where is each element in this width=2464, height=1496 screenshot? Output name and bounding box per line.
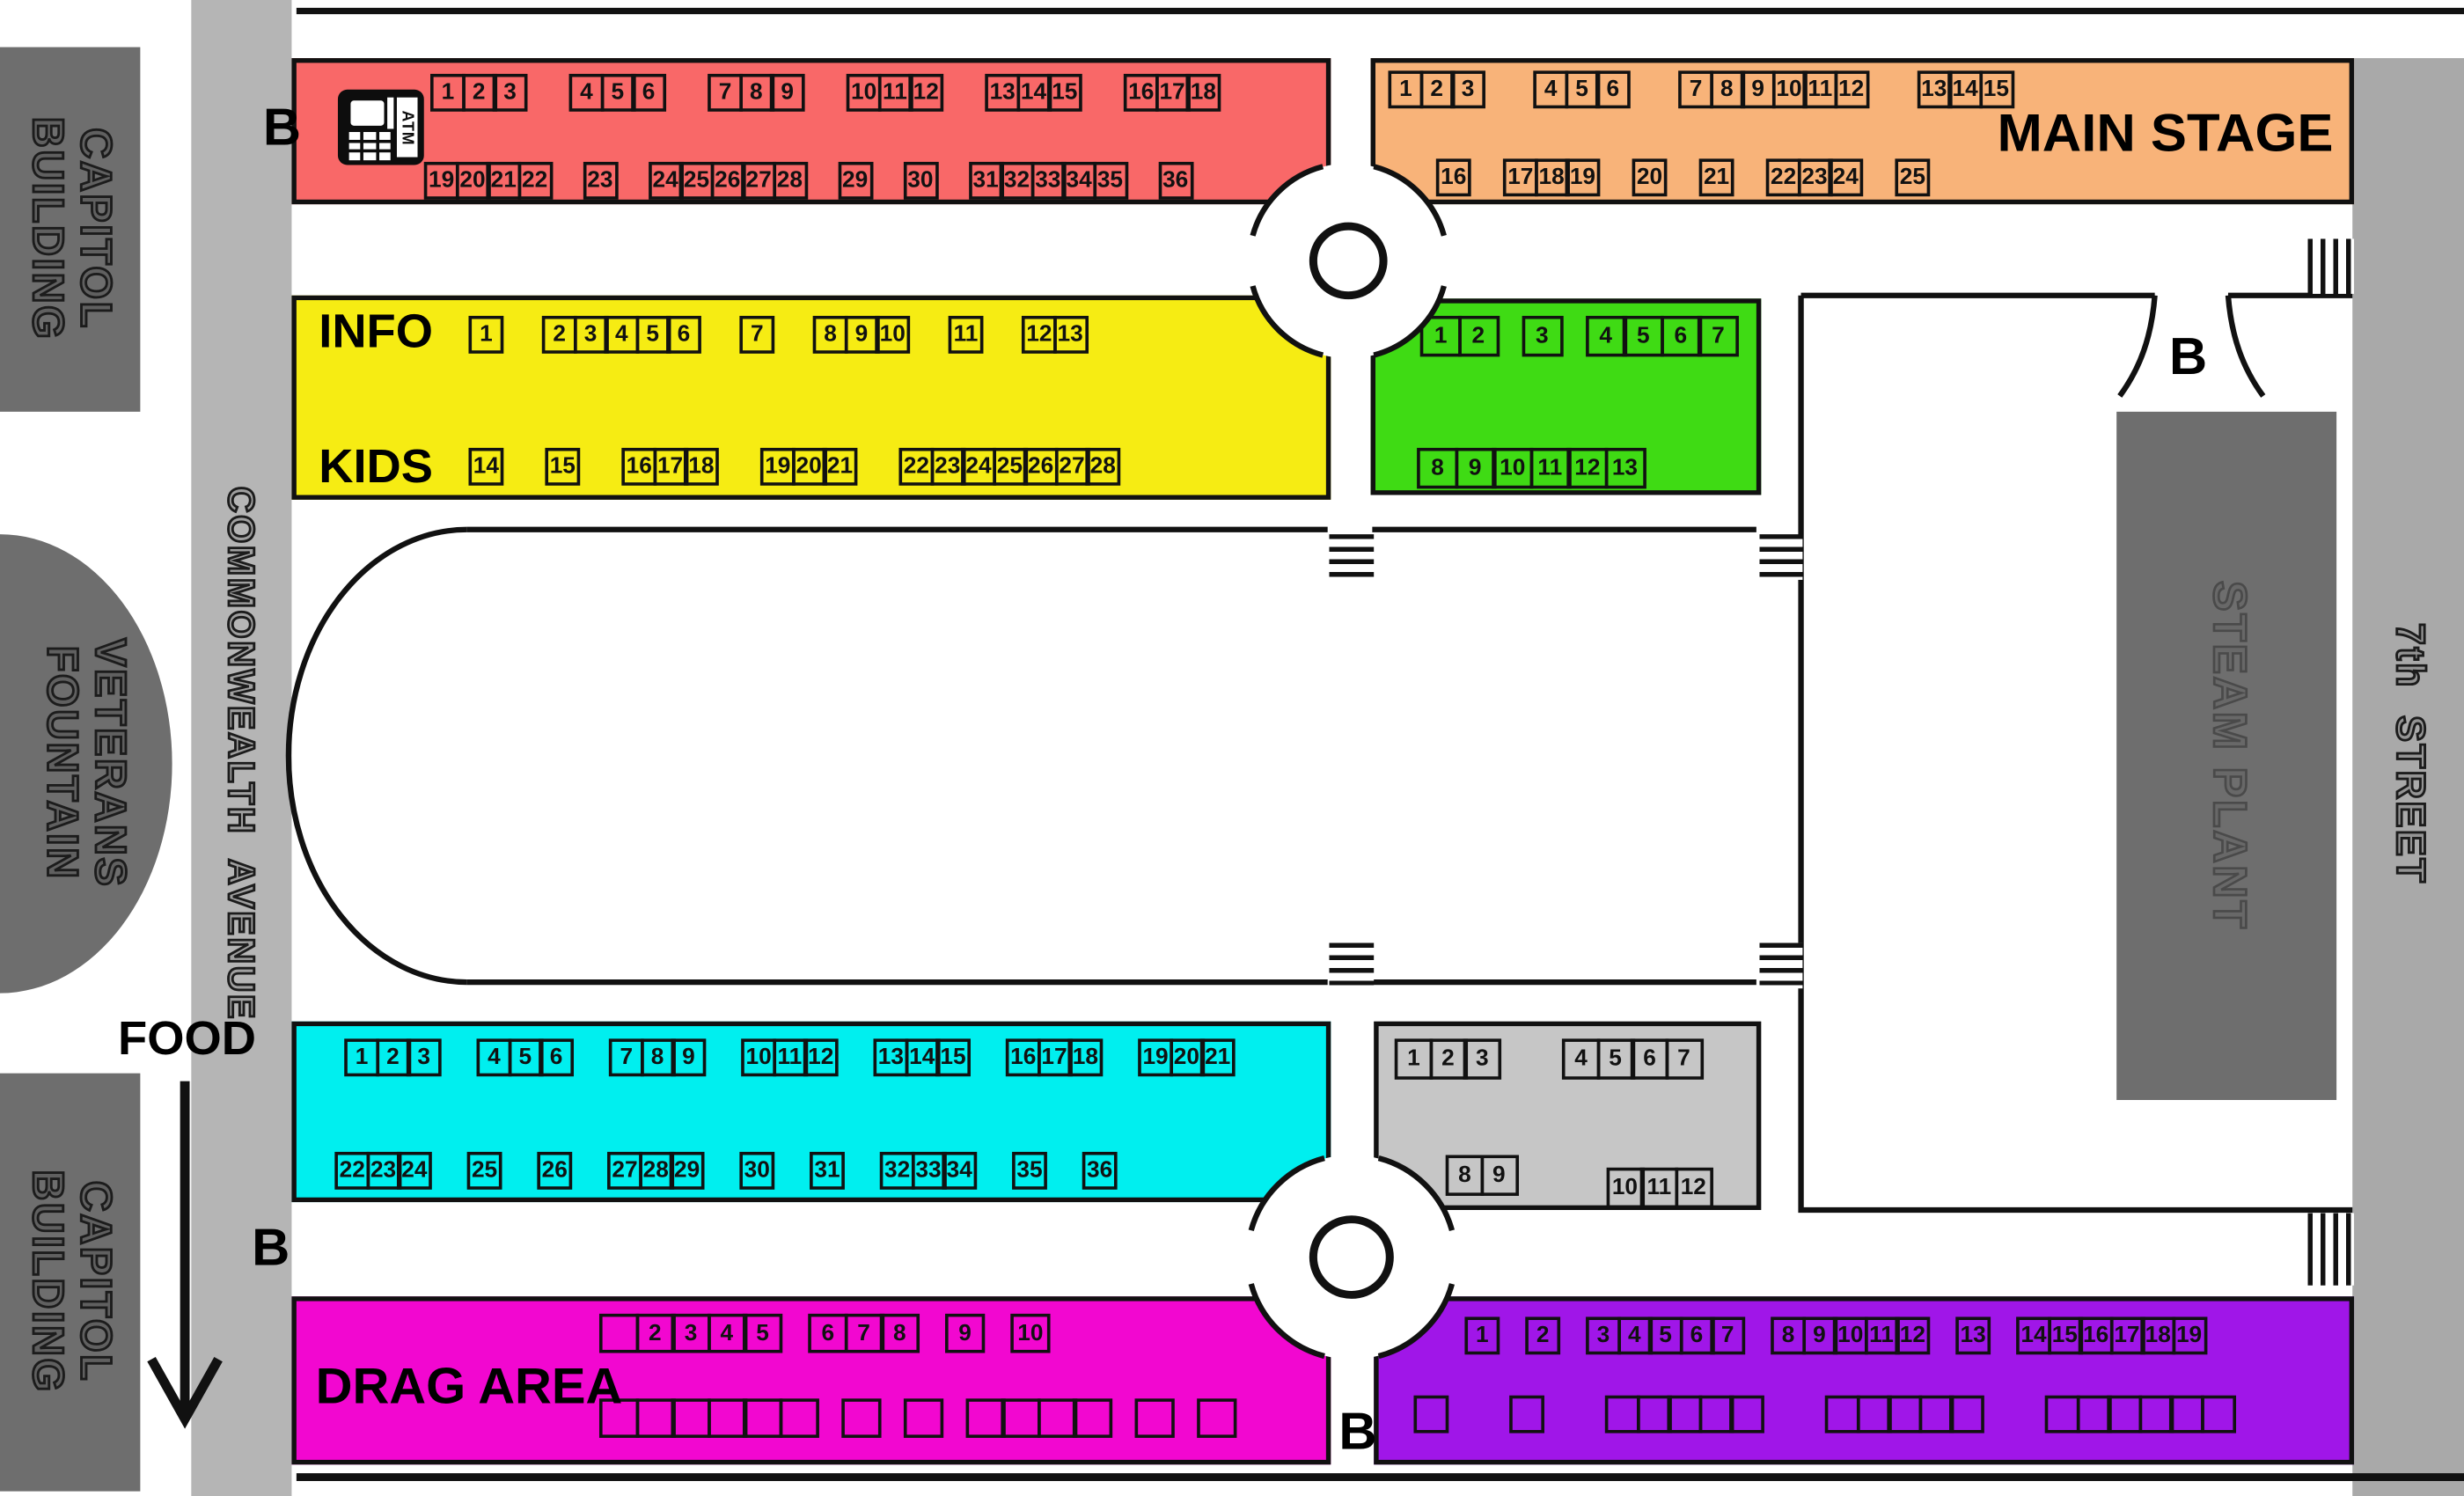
booth-group: 31: [810, 1152, 845, 1190]
booth-group: 16: [1436, 158, 1471, 196]
booth-cell: 12: [1566, 448, 1608, 488]
zone-green-vendors: 1234567 8910111213: [1371, 298, 1762, 495]
booth-cell: [1413, 1396, 1448, 1434]
booth-group: 131415: [985, 74, 1082, 112]
booth-cell: [743, 1398, 782, 1438]
booth-cell: 16: [621, 448, 656, 486]
booth-cell: 8: [880, 1314, 920, 1353]
booth-cell: [1037, 1398, 1076, 1438]
atm-icon: ATM: [338, 90, 424, 165]
capitol-building-north: CAPITOL BUILDING: [0, 48, 140, 412]
booth-group: 456: [569, 74, 666, 112]
booth-cell: [1856, 1396, 1891, 1434]
booth-cell: 11: [1640, 1168, 1678, 1208]
booth-cell: 24: [648, 162, 683, 200]
booth-cell: 10: [1492, 448, 1533, 488]
booth-group: 21: [1699, 158, 1734, 196]
zone-drag-area: DRAG AREA 2345678910: [291, 1296, 1331, 1464]
booth-cell: 23: [366, 1152, 401, 1190]
commonwealth-avenue-label: COMMONWEALTH AVENUE: [221, 488, 261, 1022]
booth-cell: [2138, 1396, 2174, 1434]
booth-cell: 25: [1895, 158, 1930, 196]
booth-cell: 32: [1000, 162, 1035, 200]
booth-cell: 18: [1185, 74, 1221, 112]
booth-cell: 21: [823, 448, 858, 486]
booth-cell: 6: [808, 1314, 847, 1353]
booth-cell: 1: [468, 316, 503, 354]
booth-cell: [840, 1398, 880, 1438]
festival-map: COMMONWEALTH AVENUE 7th STREET CAPITOL B…: [0, 0, 2464, 1496]
atm-screen: [350, 100, 384, 126]
booth-cell: 8: [1446, 1155, 1484, 1195]
booth-cell: 16: [1006, 1038, 1041, 1076]
booth-cell: 10: [1010, 1314, 1050, 1353]
booth-cell: [1073, 1398, 1112, 1438]
booth-cell: [1605, 1396, 1640, 1434]
booth-cell: 3: [1463, 1038, 1501, 1079]
booth-cell: 3: [493, 74, 528, 112]
food-label: FOOD: [118, 1014, 256, 1067]
booth-cell: 5: [743, 1314, 782, 1353]
booth-cell: [1729, 1396, 1764, 1434]
booth-cell: 15: [545, 448, 580, 486]
booth-cell: 7: [1710, 1316, 1745, 1354]
booth-group: 3132333435: [968, 162, 1127, 200]
booth-cell: 11: [1864, 1316, 1899, 1354]
booth-group: 1: [468, 316, 503, 354]
booth-cell: 22: [898, 448, 934, 486]
booth-group: 15: [545, 448, 580, 486]
booth-cell: 7: [739, 316, 774, 354]
booth-cell: 10: [847, 74, 882, 112]
booth-cell: 1: [1420, 316, 1462, 356]
booth-cell: 18: [1534, 158, 1569, 196]
booth-cell: 7: [1665, 1038, 1703, 1079]
booth-cell: 19: [1138, 1038, 1173, 1076]
booth-cell: 14: [468, 448, 503, 486]
booth-cell: 22: [517, 162, 553, 200]
booth-cell: 4: [1585, 316, 1626, 356]
booth-cell: 2: [1525, 1316, 1560, 1354]
booth-cell: 17: [1155, 74, 1190, 112]
booth-cell: 1: [1464, 1316, 1500, 1354]
booth-cell: 27: [1054, 448, 1089, 486]
drag-area-label: DRAG AREA: [316, 1358, 623, 1416]
booth-cell: 14: [905, 1038, 940, 1076]
booth-cell: 24: [1828, 158, 1863, 196]
booth-cell: 24: [961, 448, 996, 486]
crosswalk: [1329, 534, 1374, 580]
booth-cell: 9: [844, 316, 879, 354]
booth-group: 12: [1420, 316, 1500, 356]
booth-cell: 35: [1093, 162, 1128, 200]
booth-group: 101112: [1606, 1168, 1712, 1208]
booth-cell: 5: [1623, 316, 1664, 356]
booth-group: [840, 1398, 880, 1438]
booth-group: 10: [1010, 1314, 1050, 1353]
booth-cell: 8: [738, 74, 774, 112]
booth-cell: 9: [1741, 70, 1776, 108]
booth-group: 89101112: [1771, 1316, 1930, 1354]
booth-cell: 17: [653, 448, 688, 486]
capitol-building-south-label: CAPITOL BUILDING: [23, 1170, 118, 1394]
booth-cell: 7: [1678, 70, 1713, 108]
booth-group: 1213: [1022, 316, 1088, 354]
booth-cell: 19: [2172, 1316, 2207, 1354]
booth-cell: 7: [609, 1038, 644, 1076]
booth-group: 25: [467, 1152, 502, 1190]
street-linework: [0, 0, 2464, 1496]
booth-cell: 13: [873, 1038, 908, 1076]
booth-cell: 8: [1771, 1316, 1806, 1354]
booth-group: 141516171819: [2016, 1316, 2206, 1354]
booth-group: [965, 1398, 1113, 1438]
booth-cell: 29: [670, 1152, 705, 1190]
seventh-street-label: 7th STREET: [2387, 623, 2431, 884]
booth-cell: 4: [477, 1038, 512, 1076]
booth-group: 11: [949, 316, 984, 354]
booth-cell: 14: [1947, 70, 1983, 108]
booth-cell: 25: [679, 162, 715, 200]
atm-text-strip: ATM: [397, 98, 418, 158]
booth-group: [599, 1398, 818, 1438]
booth-cell: 9: [1801, 1316, 1837, 1354]
veterans-fountain-label: VETERANS FOUNTAIN: [39, 639, 134, 889]
booth-group: [1825, 1396, 1984, 1434]
booth-cell: 4: [707, 1314, 746, 1353]
booth-group: 789101112: [1678, 70, 1868, 108]
steam-plant-label: STEAM PLANT: [2201, 581, 2252, 931]
booth-group: 131415: [873, 1038, 970, 1076]
booth-cell: 36: [1158, 162, 1193, 200]
booth-cell: 28: [772, 162, 807, 200]
booth-group: 3: [1522, 316, 1563, 356]
booth-cell: 8: [813, 316, 848, 354]
booth-cell: 2: [1457, 316, 1499, 356]
booth-cell: 15: [935, 1038, 971, 1076]
booth-cell: [1197, 1398, 1236, 1438]
booth-cell: 18: [1067, 1038, 1103, 1076]
booth-group: 8910111213: [1417, 448, 1646, 488]
booth-group: [1605, 1396, 1764, 1434]
booth-group: 789: [609, 1038, 706, 1076]
booth-cell: 5: [635, 316, 671, 354]
booth-cell: 13: [1052, 316, 1088, 354]
booth-cell: 12: [1675, 1168, 1712, 1208]
booth-cell: 11: [1802, 70, 1837, 108]
booth-group: 34567: [1586, 1316, 1745, 1354]
booth-cell: 4: [1533, 70, 1568, 108]
booth-group: [2045, 1396, 2235, 1434]
booth-cell: 2: [1419, 70, 1455, 108]
booth-cell: [1887, 1396, 1922, 1434]
booth-cell: 34: [1061, 162, 1096, 200]
booth-cell: 35: [1012, 1152, 1047, 1190]
booth-group: 4567: [1585, 316, 1739, 356]
booth-cell: 3: [671, 1314, 710, 1353]
booth-cell: 10: [1606, 1168, 1644, 1208]
zone-gray-vendors: 1234567 89101112: [1374, 1022, 1761, 1210]
booth-group: 89: [1446, 1155, 1518, 1208]
booth-cell: 31: [968, 162, 1003, 200]
booth-cell: 6: [666, 316, 701, 354]
booth-group: 2425262728: [648, 162, 807, 200]
booth-cell: 13: [985, 74, 1020, 112]
crosswalk: [1759, 942, 1802, 988]
booth-cell: 1: [430, 74, 466, 112]
booth-group: 323334: [880, 1152, 977, 1190]
booth-cell: [1509, 1396, 1544, 1434]
booth-cell: 7: [1698, 316, 1739, 356]
booth-group: 25: [1895, 158, 1930, 196]
booth-cell: 34: [942, 1152, 977, 1190]
booth-group: 14: [468, 448, 503, 486]
booth-cell: [635, 1398, 675, 1438]
booth-group: 789: [708, 74, 804, 112]
booth-cell: [707, 1398, 746, 1438]
booth-cell: 8: [640, 1038, 675, 1076]
booth-group: 171819: [1503, 158, 1600, 196]
booth-group: 22232425262728: [898, 448, 1120, 486]
booth-cell: 10: [741, 1038, 776, 1076]
booth-cell: 1: [344, 1038, 379, 1076]
booth-cell: 11: [772, 1038, 807, 1076]
booth-cell: 16: [1124, 74, 1159, 112]
booth-cell: 10: [1771, 70, 1807, 108]
crosswalk: [2308, 238, 2355, 293]
zone-info-kids: INFO KIDS 12345678910111213 141516171819…: [291, 296, 1331, 500]
booth-cell: 13: [1604, 448, 1646, 488]
booth-cell: 9: [770, 74, 805, 112]
booth-cell: [671, 1398, 710, 1438]
booth-cell: 1: [1388, 70, 1423, 108]
booth-cell: 15: [1979, 70, 2014, 108]
booth-group: 23: [583, 162, 618, 200]
booth-cell: 11: [949, 316, 984, 354]
booth-cell: 6: [1679, 1316, 1714, 1354]
bus-stop-b-south-center: B: [1338, 1402, 1376, 1462]
booth-cell: 36: [1082, 1152, 1118, 1190]
booth-cell: 24: [397, 1152, 432, 1190]
booth-cell: 6: [1631, 1038, 1668, 1079]
booth-cell: 29: [838, 162, 873, 200]
booth-group: 161718: [1006, 1038, 1103, 1076]
booth-cell: [2169, 1396, 2204, 1434]
booth-group: 9: [945, 1314, 985, 1353]
booth-cell: 33: [1030, 162, 1066, 200]
booth-cell: 26: [1023, 448, 1059, 486]
atm-handle: [387, 98, 393, 129]
booth-cell: 25: [992, 448, 1027, 486]
booth-cell: 25: [467, 1152, 502, 1190]
booth-cell: 10: [1833, 1316, 1868, 1354]
booth-cell: [1135, 1398, 1175, 1438]
booth-cell: 17: [1037, 1038, 1072, 1076]
booth-cell: 5: [1596, 1038, 1634, 1079]
booth-cell: 12: [1895, 1316, 1930, 1354]
booth-cell: 23: [930, 448, 965, 486]
booth-cell: 26: [537, 1152, 572, 1190]
booth-cell: 8: [1417, 448, 1458, 488]
booth-cell: 2: [635, 1314, 675, 1353]
booth-cell: 23: [1797, 158, 1832, 196]
zone-cyan-vendors: 123456789101112131415161718192021 222324…: [291, 1022, 1331, 1202]
booth-cell: 21: [1200, 1038, 1236, 1076]
booth-cell: 2: [376, 1038, 411, 1076]
booth-cell: [2045, 1396, 2080, 1434]
crosswalk: [2308, 1214, 2355, 1286]
booth-cell: [2076, 1396, 2111, 1434]
booth-group: 26: [537, 1152, 572, 1190]
booth-group: 20: [1632, 158, 1668, 196]
booth-cell: 2: [461, 74, 496, 112]
booth-cell: [599, 1314, 639, 1353]
booth-cell: 20: [455, 162, 490, 200]
booth-cell: 7: [844, 1314, 884, 1353]
booth-cell: [1949, 1396, 1984, 1434]
bus-stop-b-southwest: B: [252, 1218, 290, 1278]
booth-group: [903, 1398, 942, 1438]
booth-cell: [1918, 1396, 1954, 1434]
booth-group: 161718: [1124, 74, 1221, 112]
booth-cell: 23: [583, 162, 618, 200]
veterans-fountain: VETERANS FOUNTAIN: [0, 534, 172, 993]
booth-cell: 20: [1632, 158, 1668, 196]
booth-cell: 14: [1016, 74, 1052, 112]
booth-cell: 11: [1529, 448, 1571, 488]
booth-cell: 21: [486, 162, 521, 200]
booth-cell: 33: [911, 1152, 946, 1190]
booth-cell: 9: [945, 1314, 985, 1353]
booth-cell: 19: [760, 448, 796, 486]
booth-cell: 18: [684, 448, 719, 486]
booth-cell: 20: [791, 448, 826, 486]
zone-purple-vendors: 12345678910111213141516171819: [1374, 1296, 2354, 1464]
info-label: INFO: [319, 306, 433, 360]
booth-group: 2345: [599, 1314, 782, 1353]
capitol-building-north-label: CAPITOL BUILDING: [23, 117, 118, 341]
seventh-street-label-wrap: 7th STREET: [2352, 518, 2464, 990]
bus-stop-b-northeast: B: [2169, 326, 2207, 386]
booth-cell: 3: [1522, 316, 1563, 356]
booth-cell: 5: [1648, 1316, 1683, 1354]
booth-cell: 6: [539, 1038, 574, 1076]
booth-cell: [965, 1398, 1005, 1438]
booth-cell: 16: [1436, 158, 1471, 196]
booth-cell: 27: [607, 1152, 642, 1190]
booth-cell: 10: [875, 316, 910, 354]
atm-keypad: [349, 132, 391, 160]
booth-group: 30: [903, 162, 938, 200]
booth-group: 1: [1464, 1316, 1500, 1354]
booth-group: 222324: [334, 1152, 431, 1190]
booth-cell: 4: [1617, 1316, 1652, 1354]
booth-cell: 6: [1595, 70, 1631, 108]
booth-cell: 5: [508, 1038, 543, 1076]
booth-cell: 19: [1566, 158, 1601, 196]
booth-cell: 9: [1480, 1155, 1518, 1195]
booth-cell: 17: [1503, 158, 1538, 196]
booth-group: 13: [1955, 1316, 1991, 1354]
booth-cell: 7: [708, 74, 743, 112]
booth-cell: 4: [604, 316, 639, 354]
booth-cell: 14: [2016, 1316, 2051, 1354]
booth-group: 123: [430, 74, 527, 112]
booth-group: 123: [1388, 70, 1485, 108]
crosswalk: [1759, 534, 1802, 580]
booth-cell: 30: [739, 1152, 774, 1190]
booth-cell: 19: [424, 162, 459, 200]
booth-cell: 2: [542, 316, 577, 354]
booth-cell: 2: [1429, 1038, 1467, 1079]
booth-cell: 11: [877, 74, 913, 112]
booth-cell: 12: [1834, 70, 1869, 108]
commonwealth-avenue-label-wrap: COMMONWEALTH AVENUE: [191, 440, 291, 1068]
booth-cell: 1: [1395, 1038, 1433, 1079]
booth-group: 35: [1012, 1152, 1047, 1190]
booth-cell: 5: [1565, 70, 1600, 108]
booth-group: [1413, 1396, 1448, 1434]
booth-cell: 18: [2140, 1316, 2175, 1354]
booth-cell: [2200, 1396, 2235, 1434]
booth-group: 2: [1525, 1316, 1560, 1354]
booth-group: 23456: [542, 316, 701, 354]
booth-cell: [779, 1398, 818, 1438]
booth-group: 36: [1082, 1152, 1118, 1190]
booth-cell: 12: [1022, 316, 1057, 354]
booth-cell: [903, 1398, 942, 1438]
booth-cell: 4: [1562, 1038, 1600, 1079]
booth-cell: 32: [880, 1152, 915, 1190]
booth-cell: 9: [671, 1038, 706, 1076]
booth-group: 29: [838, 162, 873, 200]
booth-cell: 9: [1455, 448, 1496, 488]
booth-group: [1135, 1398, 1175, 1438]
booth-cell: 21: [1699, 158, 1734, 196]
booth-cell: [1698, 1396, 1734, 1434]
booth-cell: [1825, 1396, 1860, 1434]
booth-cell: 12: [908, 74, 943, 112]
booth-cell: [1001, 1398, 1040, 1438]
booth-group: 123: [1395, 1038, 1501, 1079]
booth-cell: [2107, 1396, 2142, 1434]
booth-group: [1197, 1398, 1236, 1438]
booth-cell: 4: [569, 74, 605, 112]
booth-group: 19202122: [424, 162, 553, 200]
capitol-building-south: CAPITOL BUILDING: [0, 1074, 140, 1492]
booth-group: 161718: [621, 448, 718, 486]
booth-group: 123: [344, 1038, 441, 1076]
booth-cell: 6: [1660, 316, 1701, 356]
booth-group: 222324: [1766, 158, 1863, 196]
zone-main-stage: 123456789101112131415 161718192021222324…: [1371, 58, 2354, 204]
booth-cell: 28: [1085, 448, 1120, 486]
booth-cell: 3: [407, 1038, 442, 1076]
booth-group: 101112: [741, 1038, 838, 1076]
booth-cell: 26: [710, 162, 745, 200]
booth-group: 272829: [607, 1152, 704, 1190]
booth-cell: 22: [1766, 158, 1801, 196]
booth-group: 101112: [847, 74, 943, 112]
booth-cell: 13: [1955, 1316, 1991, 1354]
booth-group: 192021: [760, 448, 857, 486]
booth-group: 4567: [1562, 1038, 1703, 1079]
booth-group: 131415: [1917, 70, 2013, 108]
booth-cell: 3: [1586, 1316, 1621, 1354]
zone-red-vendors: 123456789101112131415161718 192021222324…: [291, 58, 1331, 204]
steam-plant-building: STEAM PLANT: [2116, 412, 2336, 1100]
booth-cell: 16: [2079, 1316, 2114, 1354]
